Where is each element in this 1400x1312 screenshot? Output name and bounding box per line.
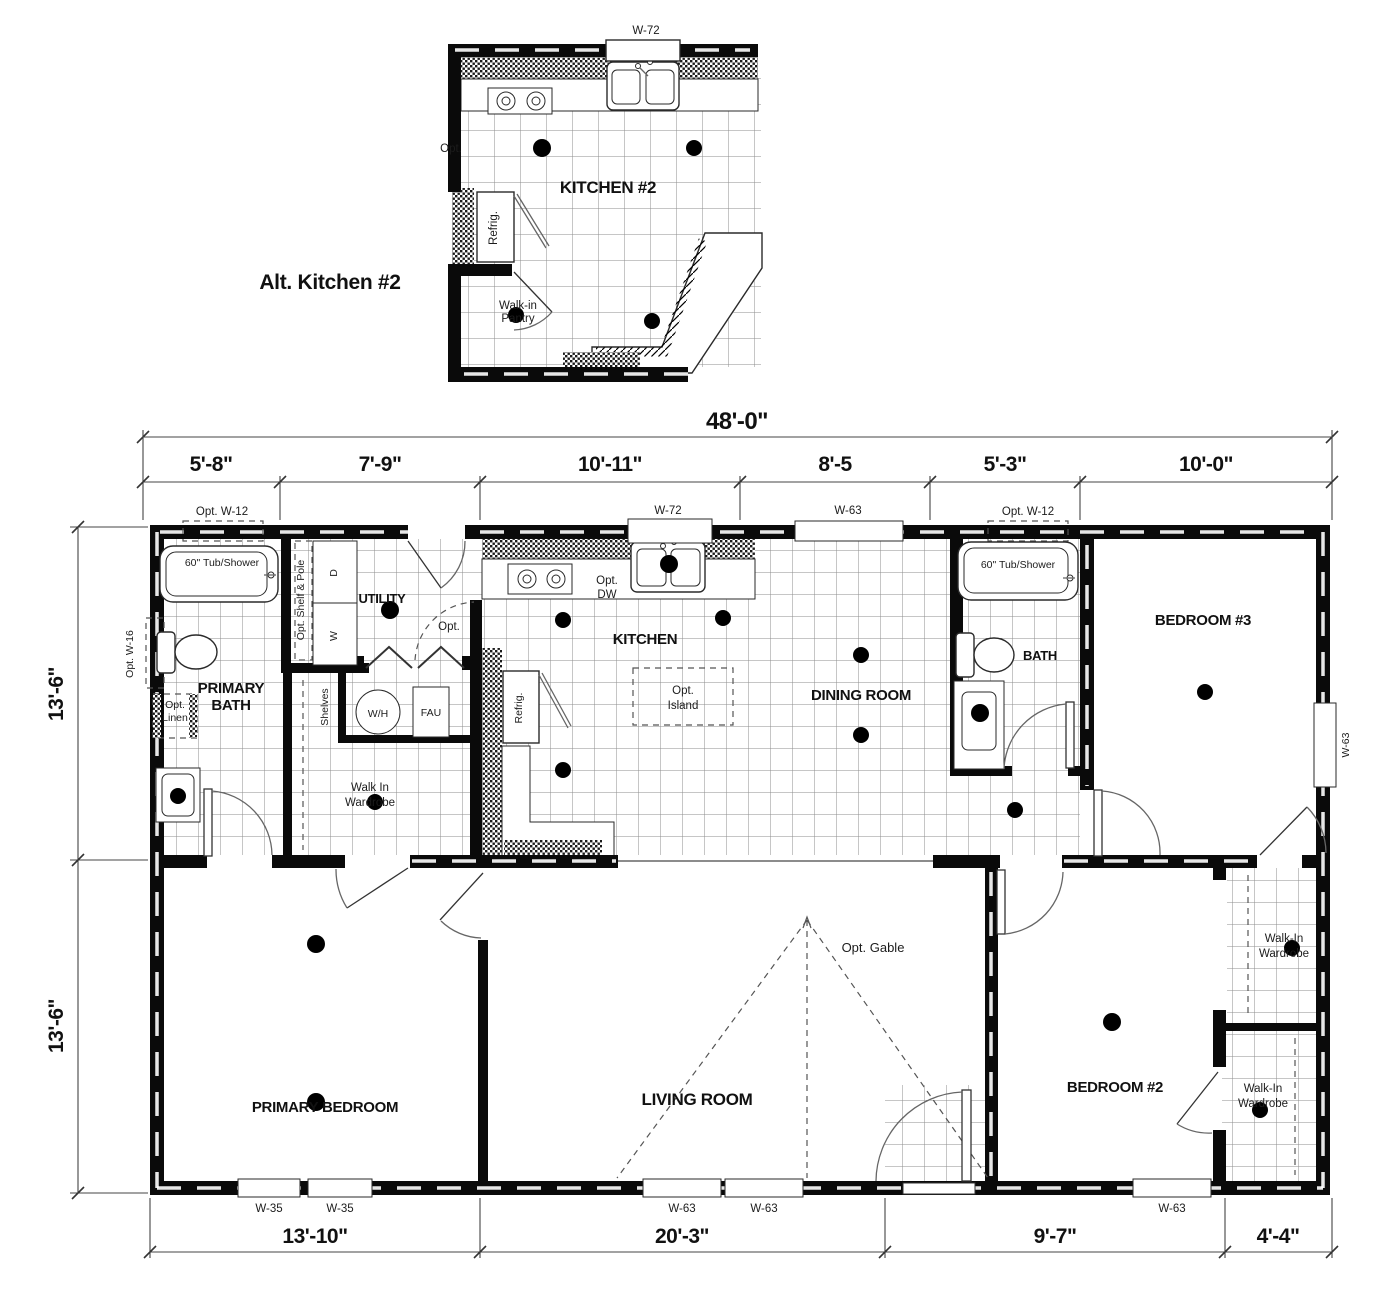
inset-w72-label: W-72 [632, 25, 659, 37]
label-wardrobe-2: Wardrobe [345, 797, 395, 809]
dim-bottom-1: 13'-10" [282, 1225, 347, 1248]
label-w63-top: W-63 [834, 505, 861, 517]
label-dining: DINING ROOM [811, 687, 911, 704]
label-w63-bottom-2: W-63 [750, 1203, 777, 1215]
dim-top-1: 5'-8" [190, 453, 233, 476]
inset-pantry-label-1: Walk-in [499, 300, 537, 312]
label-opt-island-1: Opt. [672, 685, 694, 697]
inset-pantry-label-2: Pantry [501, 313, 534, 325]
floor-plan-page: Alt. Kitchen #2 W-72 KITCHEN #2 Opt. Ref… [0, 0, 1400, 1312]
inset-title: Alt. Kitchen #2 [259, 271, 400, 294]
inset-kitchen2-label: KITCHEN #2 [560, 178, 656, 197]
inset-opt-label: Opt. [440, 143, 462, 155]
label-wiw-lower-2: Wardrobe [1238, 1098, 1288, 1110]
inset-window-w72 [606, 40, 680, 61]
label-kitchen: KITCHEN [613, 631, 678, 648]
label-opt-w12-right: Opt. W-12 [1002, 506, 1054, 518]
living-hall-door [440, 873, 483, 938]
dim-top-3: 10'-11" [578, 453, 642, 476]
label-refrig-main: Refrig. [513, 693, 525, 724]
dim-bottom-4: 4'-4" [1257, 1225, 1300, 1248]
bedroom2-wardrobe-door [1177, 1072, 1218, 1133]
dim-top-6: 10'-0" [1179, 453, 1233, 476]
primary-bedroom-door [336, 868, 408, 908]
label-wiw-lower-1: Walk-In [1244, 1083, 1283, 1095]
dim-top-2: 7'-9" [359, 453, 402, 476]
label-bath2: BATH [1023, 648, 1057, 663]
label-shelves: Shelves [319, 688, 331, 725]
label-tub2: 60" Tub/Shower [981, 559, 1056, 571]
tile-wardrobe-upper [1227, 868, 1316, 1023]
inset-sink [607, 60, 679, 111]
label-tub1: 60" Tub/Shower [185, 557, 260, 569]
dim-top-4: 8'-5 [818, 453, 852, 476]
window-w63-bottom-3 [1133, 1179, 1211, 1197]
label-opt-island-2: Island [668, 700, 699, 712]
window-w63-top [795, 521, 903, 541]
bedroom2-door [997, 870, 1063, 934]
label-primary-bath-1: PRIMARY [198, 680, 265, 697]
label-fau: FAU [421, 707, 441, 719]
label-wiw-upper-2: Wardrobe [1259, 948, 1309, 960]
label-utility: UTILITY [358, 591, 406, 606]
label-bedroom2: BEDROOM #2 [1067, 1079, 1163, 1096]
dim-left-upper: 13'-6" [45, 667, 68, 721]
window-w72 [628, 519, 712, 543]
label-opt-kitchen: Opt. [438, 621, 460, 633]
dim-bottom-3: 9'-7" [1034, 1225, 1077, 1248]
label-w35-1: W-35 [255, 1203, 282, 1215]
label-opt-gable: Opt. Gable [842, 940, 905, 955]
label-opt-w16: Opt. W-16 [124, 630, 136, 678]
label-opt-linen-1: Opt. [165, 699, 185, 711]
dim-bottom-2: 20'-3" [655, 1225, 709, 1248]
window-w63-right [1314, 703, 1336, 787]
dim-left-lower: 13'-6" [45, 999, 68, 1053]
floor-plan-drawing: Alt. Kitchen #2 W-72 KITCHEN #2 Opt. Ref… [0, 0, 1400, 1312]
label-living: LIVING ROOM [642, 1090, 753, 1109]
label-w63-right: W-63 [1340, 732, 1352, 757]
label-wiw-upper-1: Walk-In [1265, 933, 1304, 945]
window-w35-1 [238, 1179, 300, 1197]
window-w35-2 [308, 1179, 372, 1197]
label-shelf-pole: Opt. Shelf & Pole [295, 560, 307, 641]
label-primary-bedroom: PRIMARY BEDROOM [252, 1099, 398, 1116]
bedroom3-door [1094, 790, 1160, 856]
inset-refrig-label: Refrig. [488, 211, 500, 245]
label-water-heater: W/H [368, 708, 388, 720]
label-w63-bottom-1: W-63 [668, 1203, 695, 1215]
dim-top-5: 5'-3" [984, 453, 1027, 476]
label-primary-bath-2: BATH [211, 697, 250, 714]
inset-alt-kitchen: Alt. Kitchen #2 W-72 KITCHEN #2 Opt. Ref… [259, 25, 762, 382]
label-opt-linen-2: Linen [162, 712, 188, 724]
label-bedroom3: BEDROOM #3 [1155, 612, 1251, 629]
window-w63-bottom-2 [725, 1179, 803, 1197]
label-opt-w12-left: Opt. W-12 [196, 506, 248, 518]
label-w35-2: W-35 [326, 1203, 353, 1215]
label-dryer: D [328, 569, 340, 577]
vanity-bath2 [954, 681, 1004, 769]
label-w63-bottom-3: W-63 [1158, 1203, 1185, 1215]
label-opt-dw-2: DW [597, 589, 616, 601]
window-w63-bottom-1 [643, 1179, 721, 1197]
label-opt-dw-1: Opt. [596, 575, 618, 587]
front-door-threshold [903, 1183, 975, 1194]
label-wardrobe-1: Walk In [351, 782, 389, 794]
dim-total-width: 48'-0" [706, 408, 768, 435]
label-washer: W [328, 631, 340, 641]
main-plan: PRIMARY BATH UTILITY KITCHEN DINING ROOM… [124, 505, 1352, 1215]
label-w72: W-72 [654, 505, 681, 517]
